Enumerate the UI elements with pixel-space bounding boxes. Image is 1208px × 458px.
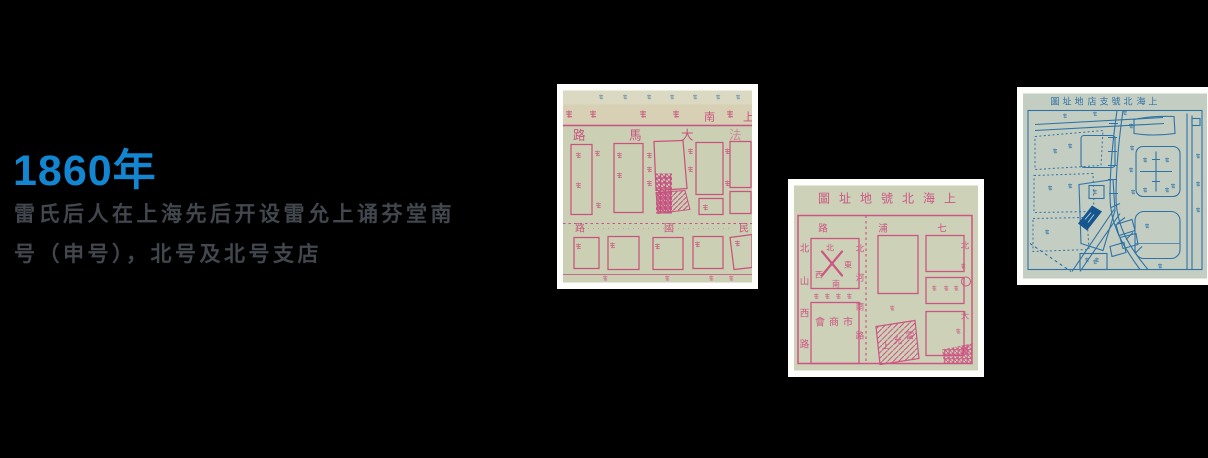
street-char: 山 <box>800 277 810 288</box>
title-char: 北 <box>902 192 914 206</box>
street-char: 北 <box>961 241 970 251</box>
shop-char: 雷 <box>906 331 915 341</box>
street-char: 路 <box>856 331 865 341</box>
street-char: 路 <box>800 339 810 351</box>
chamber-of-commerce-label: 會 商 市 <box>815 316 853 329</box>
title-char: 址 <box>1062 96 1071 107</box>
street-char: 浦 <box>878 223 888 235</box>
south-branch-map-drawing: 南 上 路 馬 大 法 <box>563 90 752 283</box>
substore-map-drawing: 圖 址 地 店 支 號 北 海 上 <box>1023 93 1207 279</box>
title-char: 號 <box>1111 96 1120 107</box>
paper-top-strip <box>563 91 752 105</box>
timeline-description: 雷氏后人在上海先后开设雷允上诵芬堂南 号（申号），北号及北号支店 <box>14 195 494 275</box>
shop-char: 上 <box>882 341 891 351</box>
street-char: 大 <box>961 311 970 321</box>
street-char: 北 <box>856 244 865 254</box>
street-char: 西 <box>800 309 810 320</box>
band-char: 上 <box>743 111 752 124</box>
north-branch-map-drawing: 圖 址 地 號 北 海 上 路 浦 七 北 山 西 路 <box>794 185 978 371</box>
street-char: 民 <box>739 223 749 235</box>
street-char: 路 <box>573 128 586 143</box>
title-char: 地 <box>1074 96 1083 107</box>
title-char: 圖 <box>818 192 830 206</box>
shop-char: 允 <box>894 336 903 346</box>
description-line-2: 号（申号），北号及北号支店 <box>14 235 494 275</box>
street-char: 路 <box>818 223 828 235</box>
title-char: 上 <box>1148 97 1157 107</box>
chamber-char: 商 <box>829 316 839 329</box>
title-char: 址 <box>839 192 851 206</box>
street-char: 馬 <box>629 129 642 143</box>
compass-west: 西 <box>815 271 823 280</box>
title-char: 海 <box>1136 96 1145 107</box>
band-char: 南 <box>704 111 715 124</box>
compass-south: 南 <box>832 279 840 289</box>
title-char: 海 <box>923 191 935 206</box>
title-char: 地 <box>860 192 872 206</box>
street-char: 國 <box>664 223 674 235</box>
title-char: 上 <box>944 192 956 206</box>
chamber-char: 市 <box>843 316 853 329</box>
street-char: 七 <box>937 224 947 235</box>
street-char: 河 <box>856 273 865 283</box>
chamber-char: 會 <box>815 316 825 329</box>
year-heading: 1860年 <box>13 136 157 198</box>
title-char: 北 <box>1123 97 1132 107</box>
photo-south-branch-map: 南 上 路 馬 大 法 <box>557 84 758 289</box>
compass-east: 東 <box>844 260 852 270</box>
street-char: 北 <box>800 244 810 255</box>
timeline-1860-section: 1860年 雷氏后人在上海先后开设雷允上诵芬堂南 号（申号），北号及北号支店 <box>0 0 1208 458</box>
description-line-1: 雷氏后人在上海先后开设雷允上诵芬堂南 <box>14 195 494 235</box>
title-char: 號 <box>881 192 893 206</box>
photo-north-branch-map: 圖 址 地 號 北 海 上 路 浦 七 北 山 西 路 <box>788 179 984 377</box>
title-char: 圖 <box>1050 97 1059 107</box>
photo-north-branch-substore-map: 圖 址 地 店 支 號 北 海 上 <box>1017 87 1208 285</box>
street-char: 法 <box>729 129 742 143</box>
street-char: 路 <box>575 222 585 235</box>
compass-north: 北 <box>826 244 834 253</box>
street-char: 南 <box>856 302 865 312</box>
title-char: 店 <box>1087 96 1096 107</box>
hatched-lot <box>656 191 690 214</box>
title-char: 支 <box>1099 96 1108 107</box>
map-title: 圖 址 地 店 支 號 北 海 上 <box>1050 96 1157 107</box>
